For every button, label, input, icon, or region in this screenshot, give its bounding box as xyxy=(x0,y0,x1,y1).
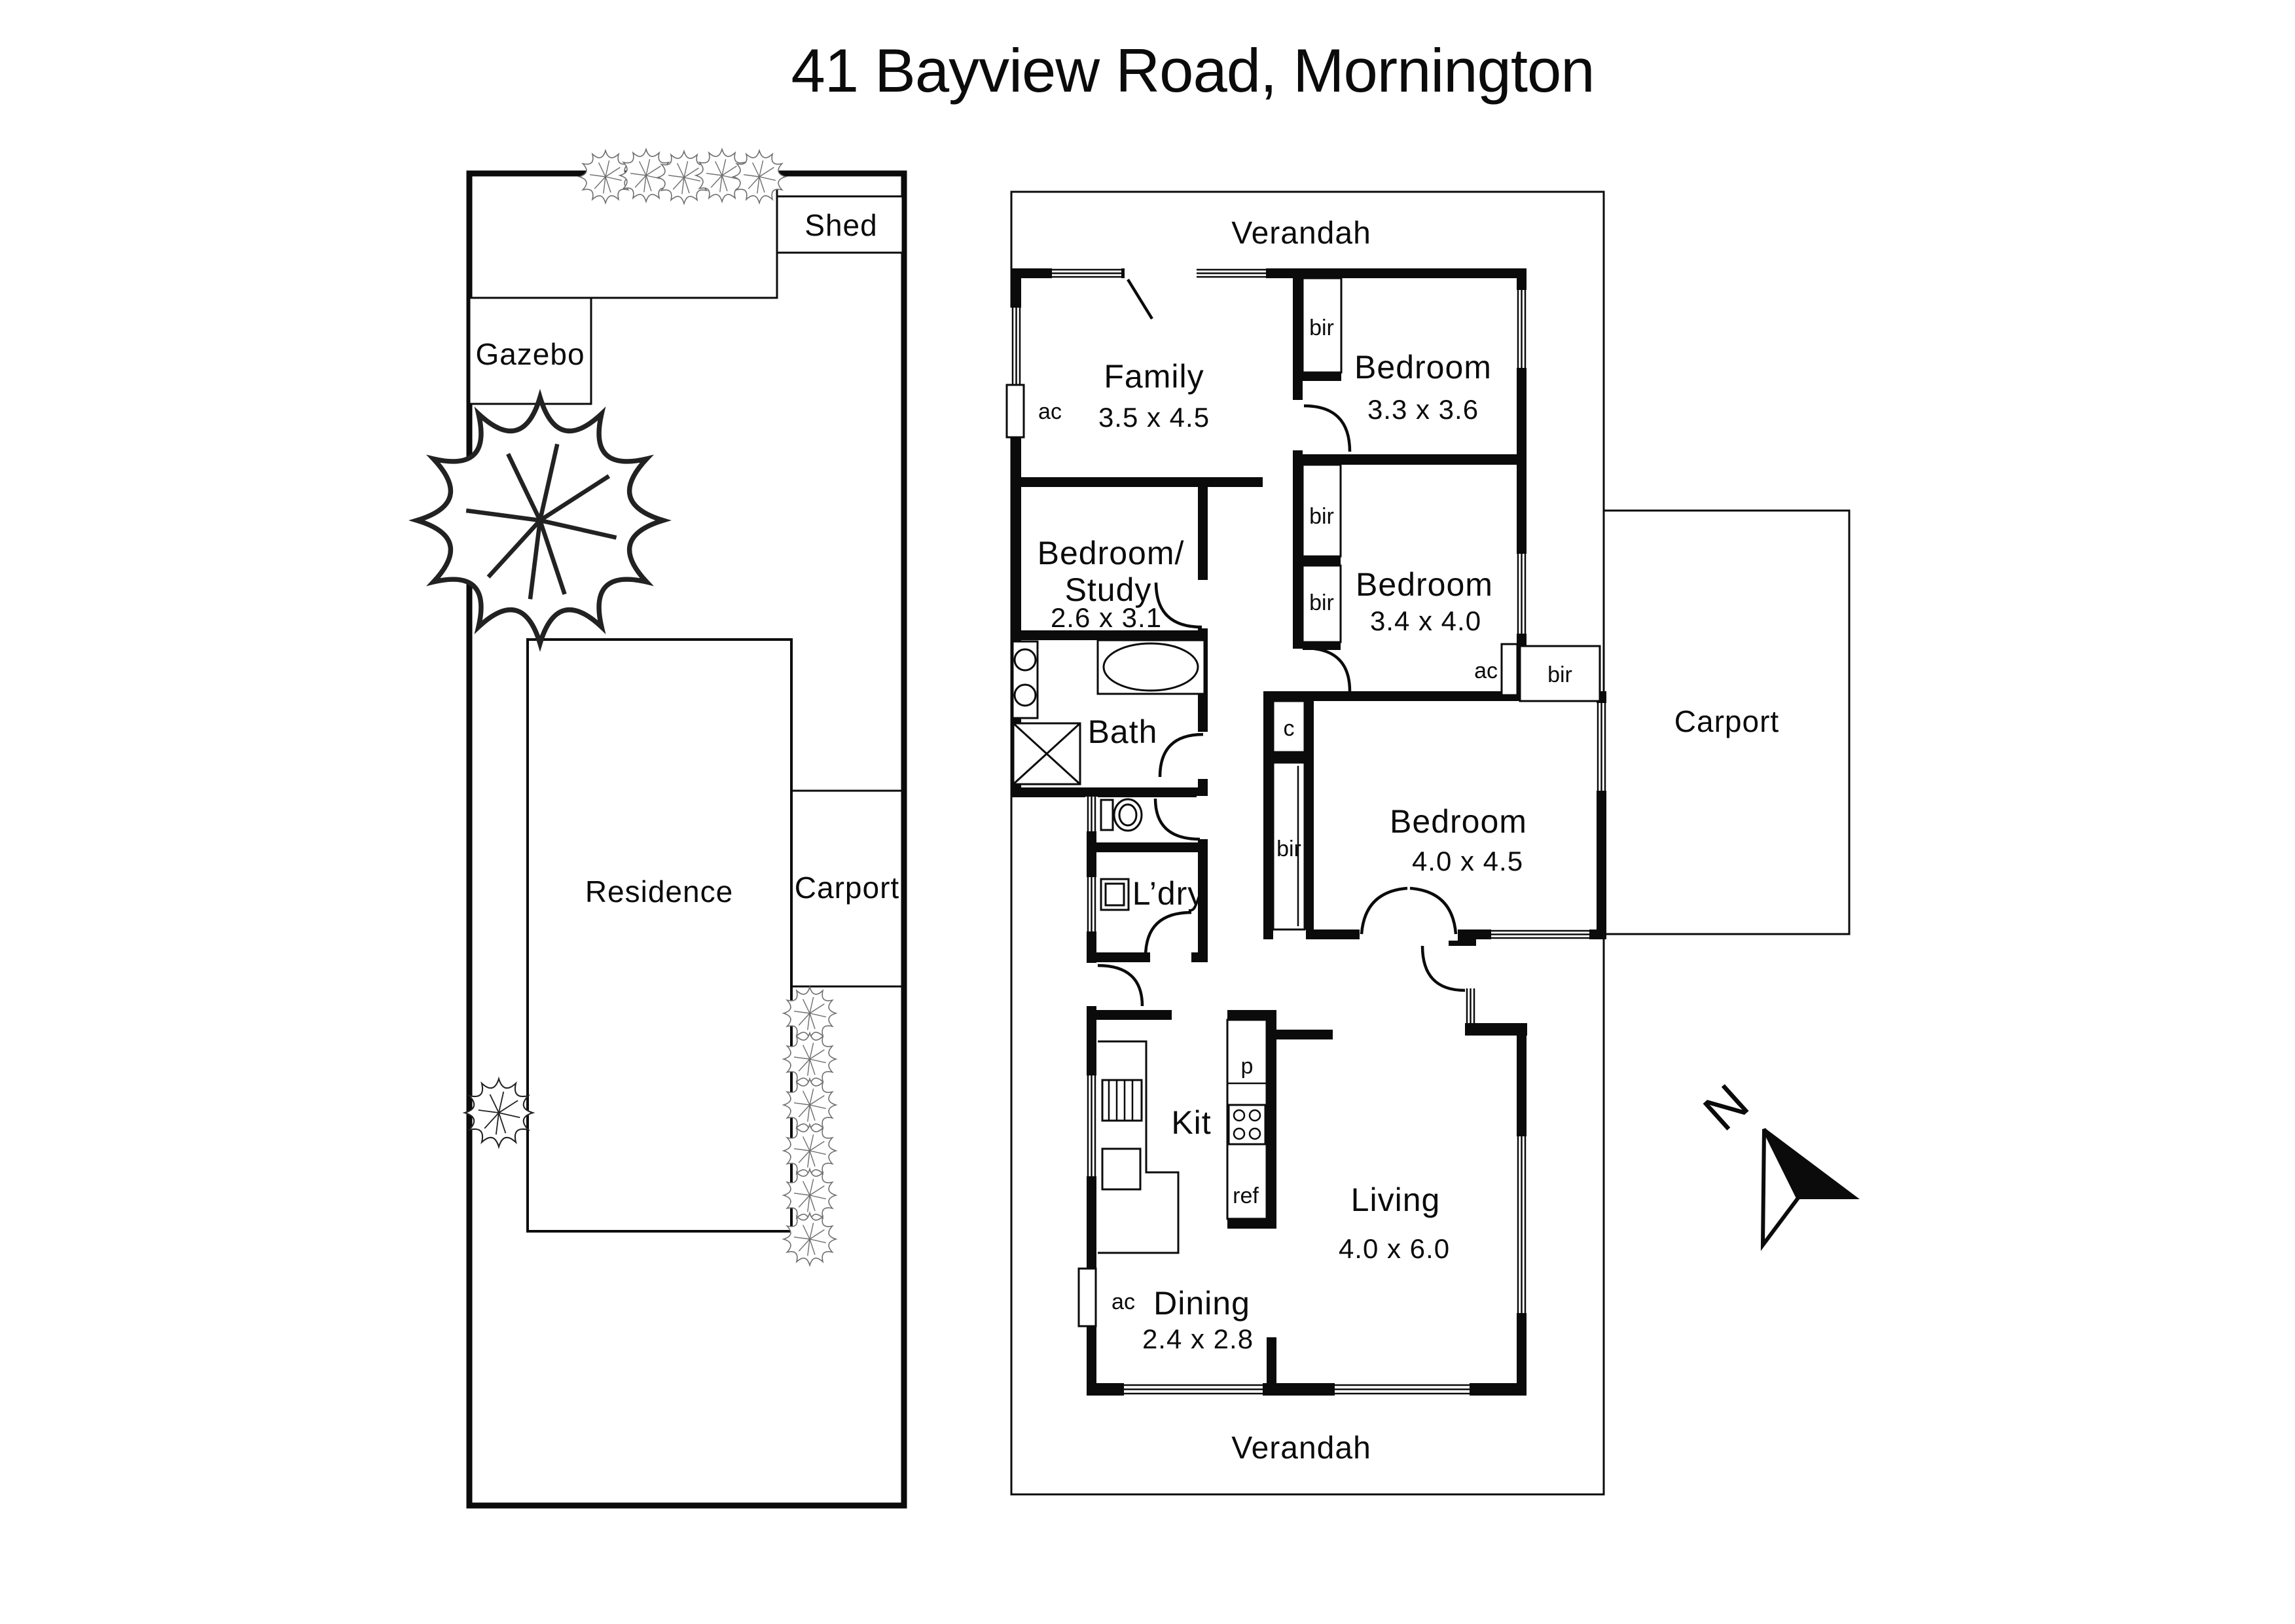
bir-label-2: bir xyxy=(1309,504,1334,529)
family-size: 3.5 x 4.5 xyxy=(1098,402,1210,433)
site-carport-label: Carport xyxy=(795,871,899,905)
family-label: Family xyxy=(1104,358,1204,395)
living-size: 4.0 x 6.0 xyxy=(1339,1233,1450,1264)
large-tree-icon xyxy=(417,397,663,643)
residence xyxy=(528,640,791,1231)
site-plan: Shed Gazebo Residence Carport xyxy=(417,149,904,1506)
bedroom2-label: Bedroom xyxy=(1356,566,1493,603)
page-title: 41 Bayview Road, Mornington xyxy=(791,36,1594,105)
bir-label-4: bir xyxy=(1547,662,1572,687)
bir-label-3: bir xyxy=(1309,590,1334,615)
verandah-bottom-label: Verandah xyxy=(1231,1431,1371,1466)
verandah-top-label: Verandah xyxy=(1231,216,1371,251)
bedroom-study-label1: Bedroom/ xyxy=(1038,535,1185,571)
laundry-washer-icon xyxy=(1101,879,1129,910)
bedroom-study-size: 2.6 x 3.1 xyxy=(1051,602,1162,633)
bedroom3-size: 4.0 x 4.5 xyxy=(1412,846,1523,876)
kitchen-label: Kit xyxy=(1171,1104,1211,1141)
living-label: Living xyxy=(1351,1182,1441,1218)
bir-label-5: bir xyxy=(1276,837,1301,861)
ac-label-dining: ac xyxy=(1111,1290,1135,1314)
laundry-label: L’dry xyxy=(1132,875,1205,912)
bedroom1-size: 3.3 x 3.6 xyxy=(1367,394,1479,425)
floorplan-page: 41 Bayview Road, Mornington Shed Gazebo … xyxy=(0,0,2295,1624)
bir-label-1: bir xyxy=(1309,316,1334,340)
floor-plan: Carport Verandah Verandah xyxy=(1007,192,1849,1494)
carport-label: Carport xyxy=(1674,704,1779,738)
gazebo-label: Gazebo xyxy=(475,337,585,371)
shed-label: Shed xyxy=(804,208,877,242)
pantry-label: p xyxy=(1241,1054,1254,1079)
wc-toilet-icon xyxy=(1101,799,1142,831)
bath-fixtures xyxy=(1013,640,1204,784)
ac-label-bedroom2: ac xyxy=(1474,659,1498,683)
bedroom1-label: Bedroom xyxy=(1354,349,1492,386)
dining-label: Dining xyxy=(1153,1285,1250,1322)
fridge-label: ref xyxy=(1233,1183,1259,1208)
hedge-trees-icon xyxy=(579,149,786,204)
ac-label-family: ac xyxy=(1038,399,1062,424)
north-arrow-icon: N xyxy=(1692,1073,1856,1245)
cupboard-label: c xyxy=(1284,716,1295,741)
small-tree-icon xyxy=(465,1079,533,1147)
residence-label: Residence xyxy=(585,875,733,909)
bedroom3-label: Bedroom xyxy=(1390,803,1527,840)
bath-label: Bath xyxy=(1088,713,1158,750)
bedroom2-size: 3.4 x 4.0 xyxy=(1370,605,1481,636)
north-label: N xyxy=(1692,1073,1759,1142)
dining-size: 2.4 x 2.8 xyxy=(1142,1324,1254,1354)
